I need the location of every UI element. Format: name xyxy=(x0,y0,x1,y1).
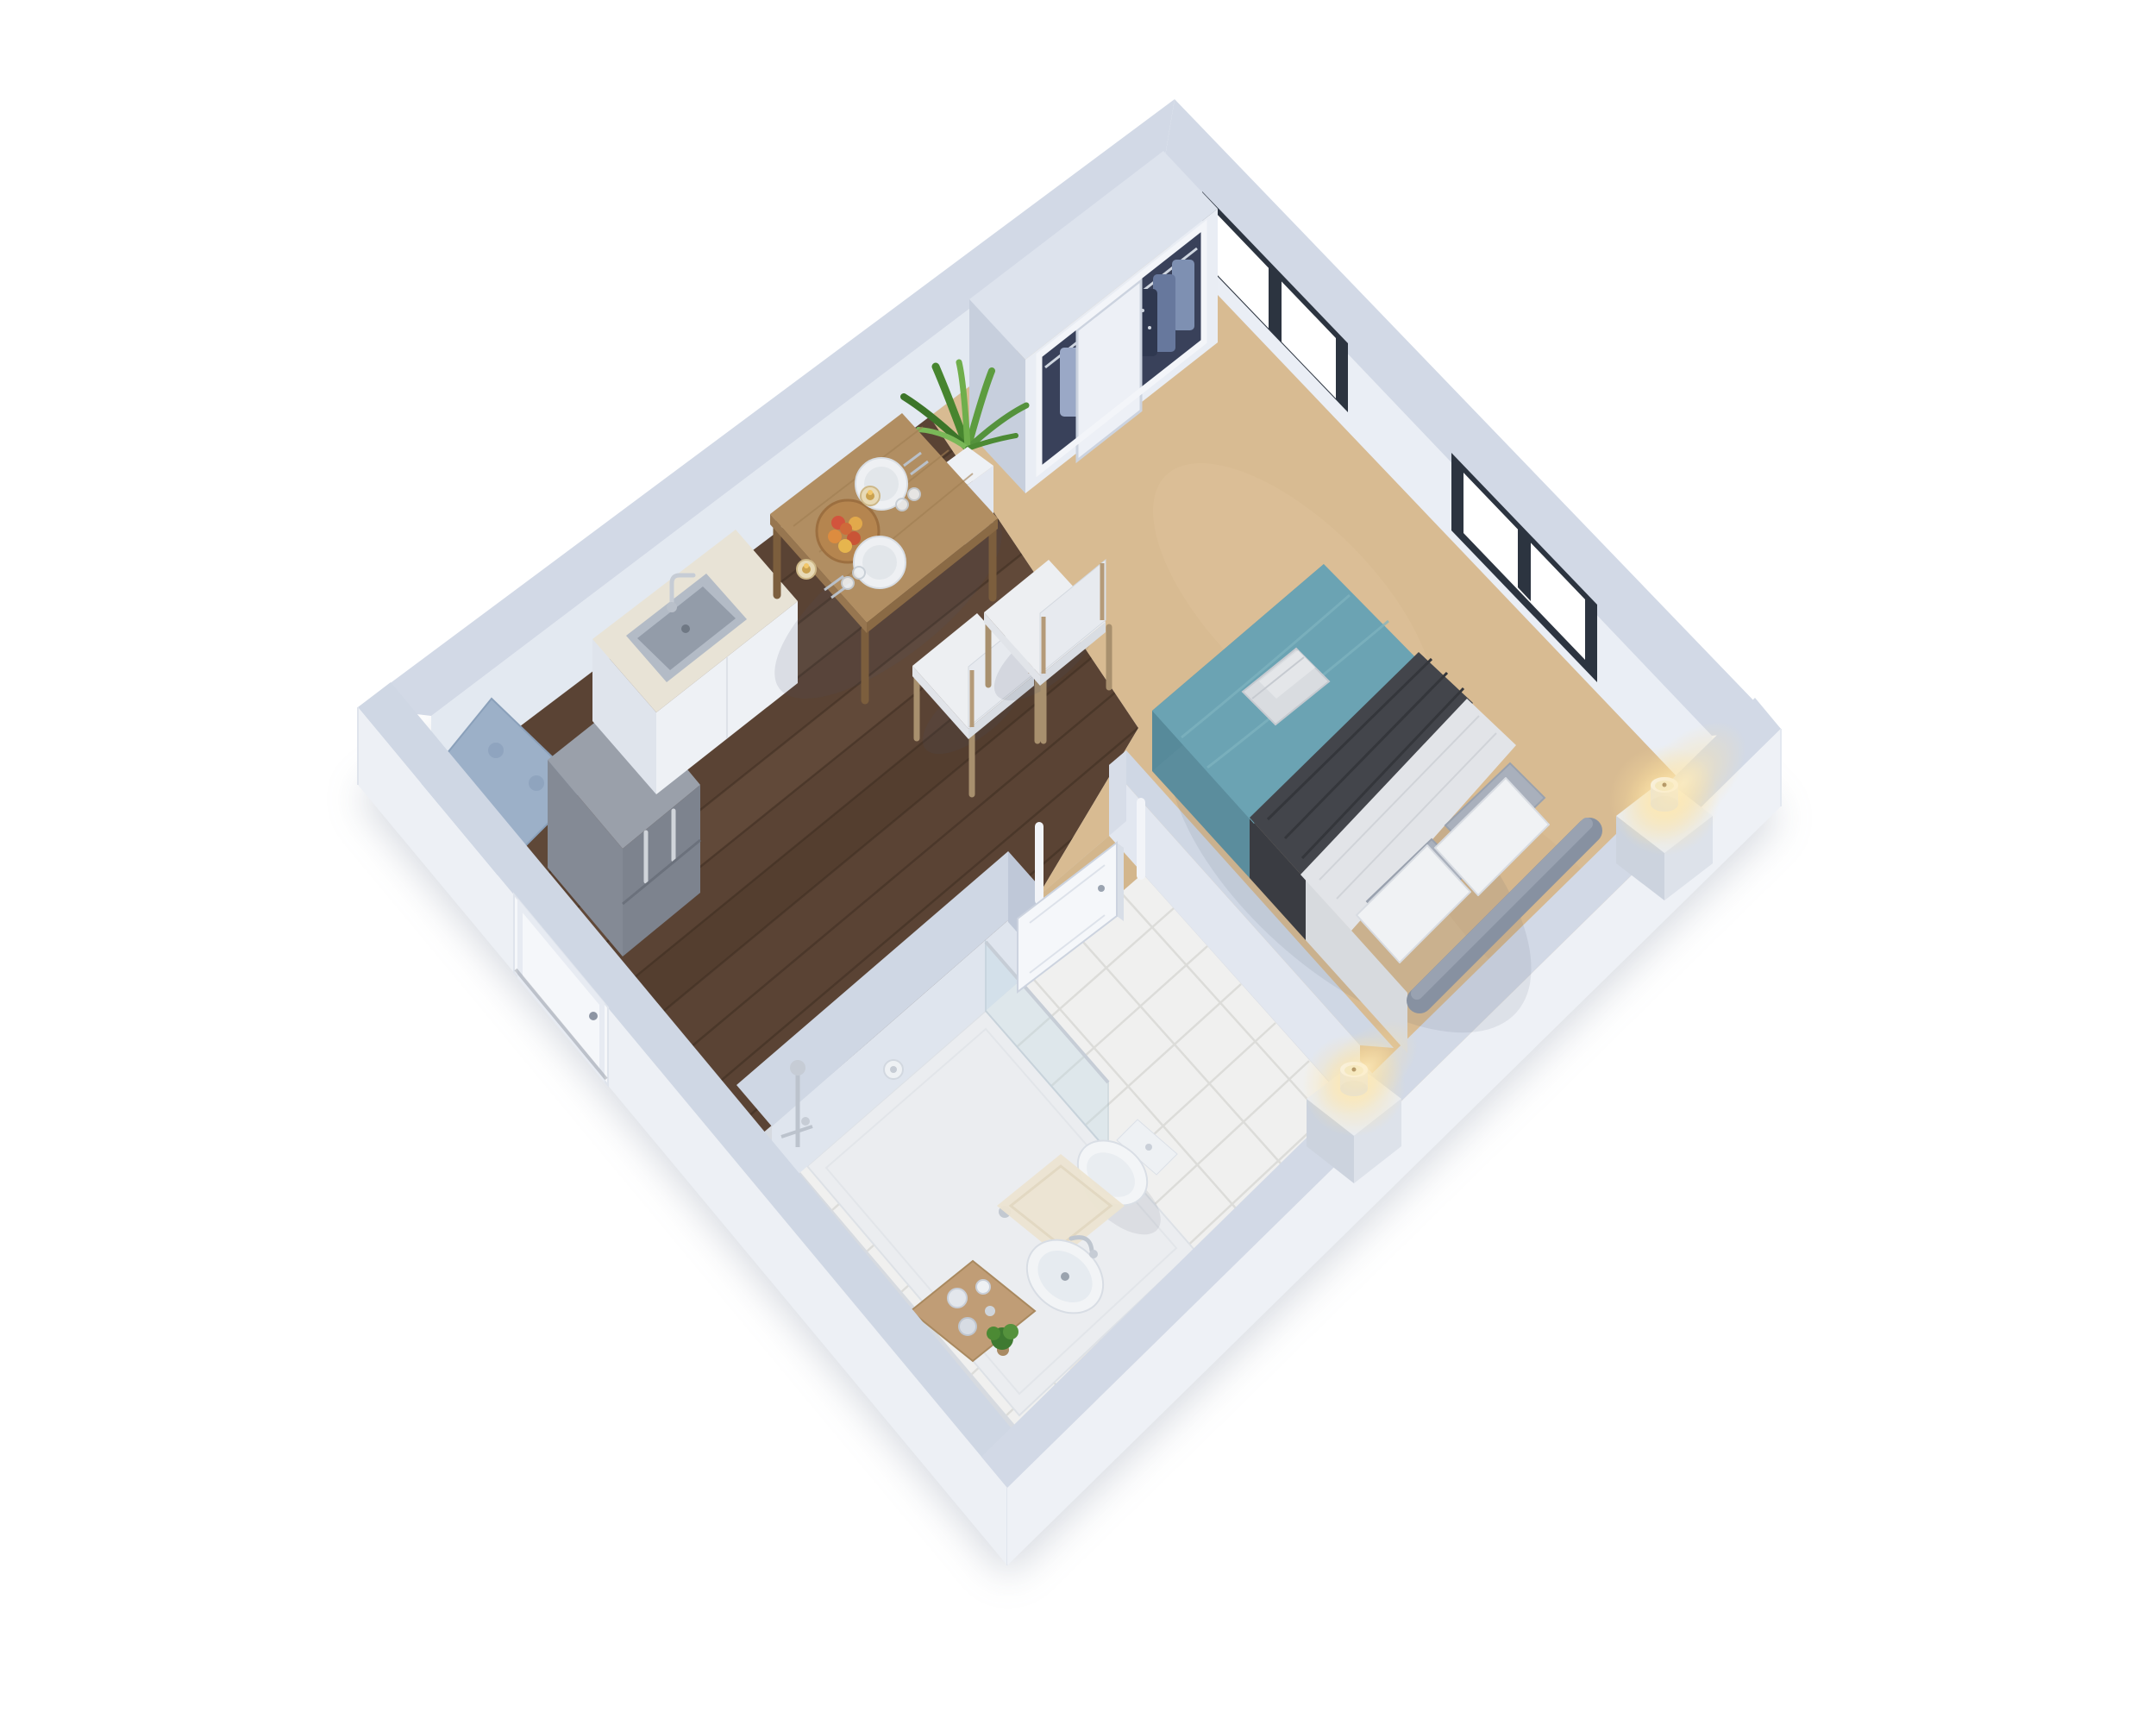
isometric-scene xyxy=(0,0,2156,1725)
flush-button xyxy=(1145,1144,1152,1151)
door-handle xyxy=(1098,885,1105,892)
toilet-paper-holder xyxy=(884,1060,903,1079)
sink-drain xyxy=(681,624,690,633)
sink-drain xyxy=(1061,1272,1069,1281)
entry-door-handle xyxy=(589,1012,598,1020)
bathroom-wall-right-end xyxy=(1109,750,1126,836)
faucet-base xyxy=(667,602,677,612)
door-edge xyxy=(1117,843,1124,921)
floor-plan-render xyxy=(0,0,2156,1725)
